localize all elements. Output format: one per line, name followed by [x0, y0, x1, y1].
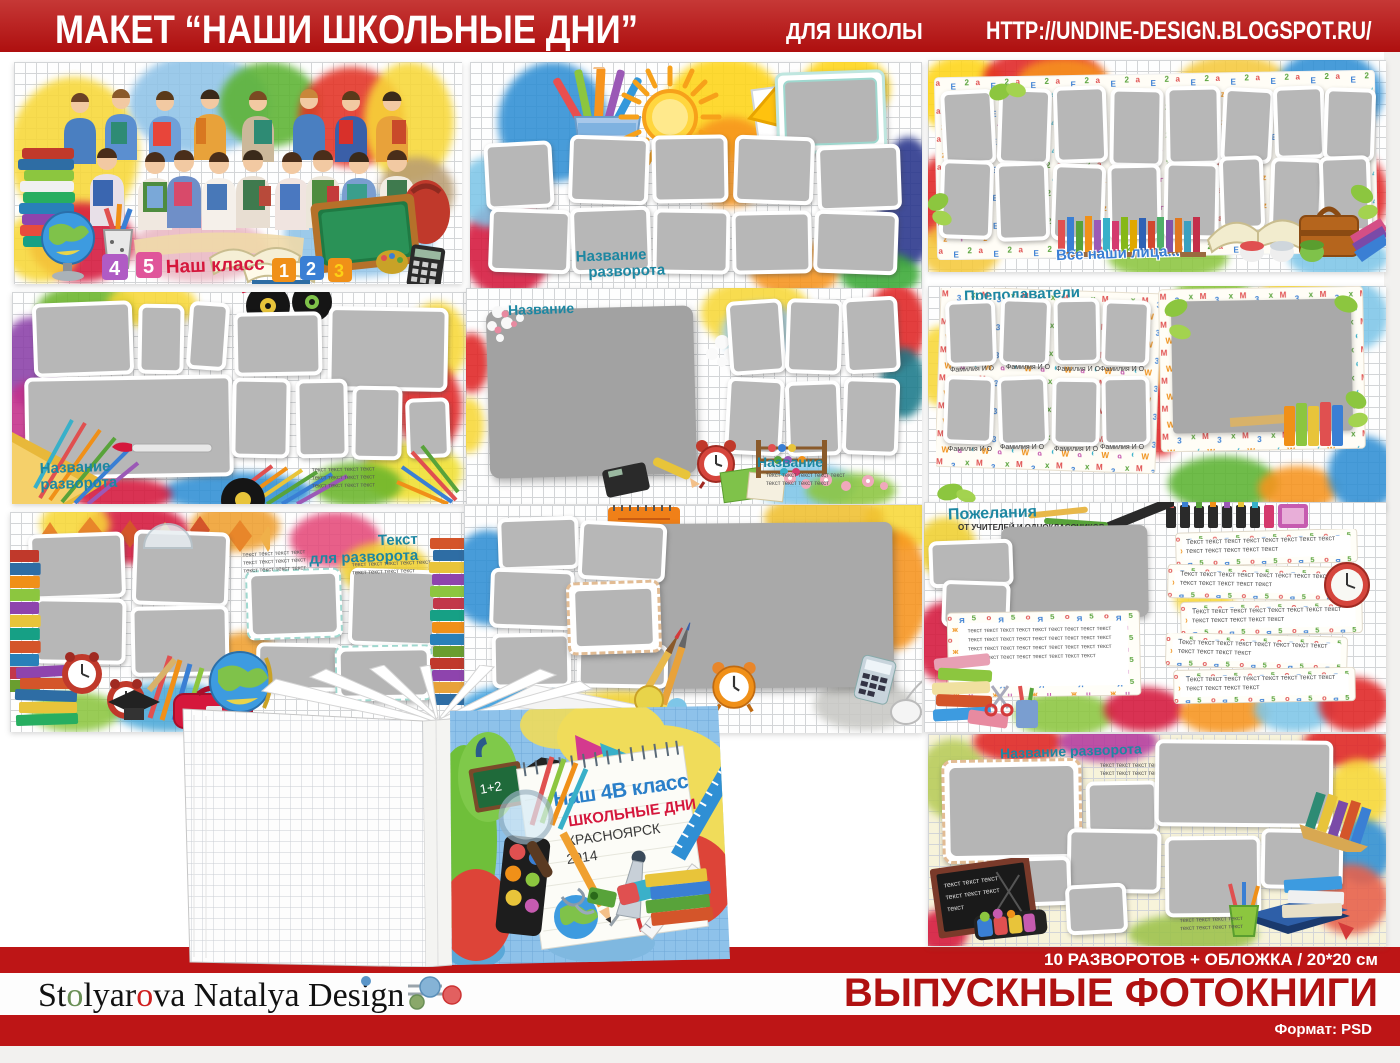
svg-text:1: 1 [279, 261, 289, 281]
svg-text:3: 3 [334, 261, 344, 281]
svg-text:2: 2 [306, 259, 316, 279]
svg-text:5: 5 [143, 256, 154, 278]
svg-text:4: 4 [109, 258, 121, 280]
svg-text:Наш класс: Наш класс [165, 254, 265, 278]
